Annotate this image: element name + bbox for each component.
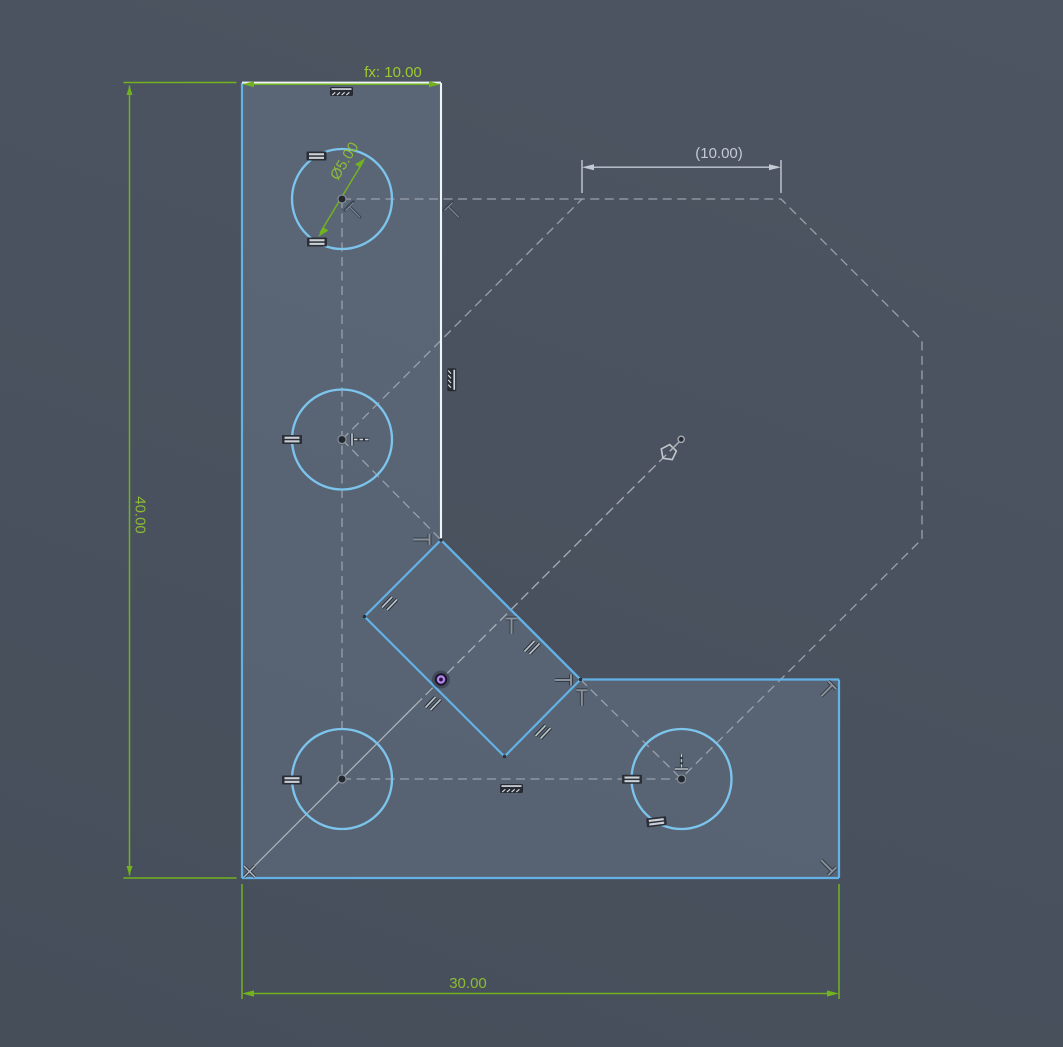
- svg-text:40.00: 40.00: [132, 496, 149, 534]
- svg-text:30.00: 30.00: [449, 975, 487, 992]
- svg-text:fx: 10.00: fx: 10.00: [364, 64, 422, 81]
- svg-text:(10.00): (10.00): [695, 145, 743, 162]
